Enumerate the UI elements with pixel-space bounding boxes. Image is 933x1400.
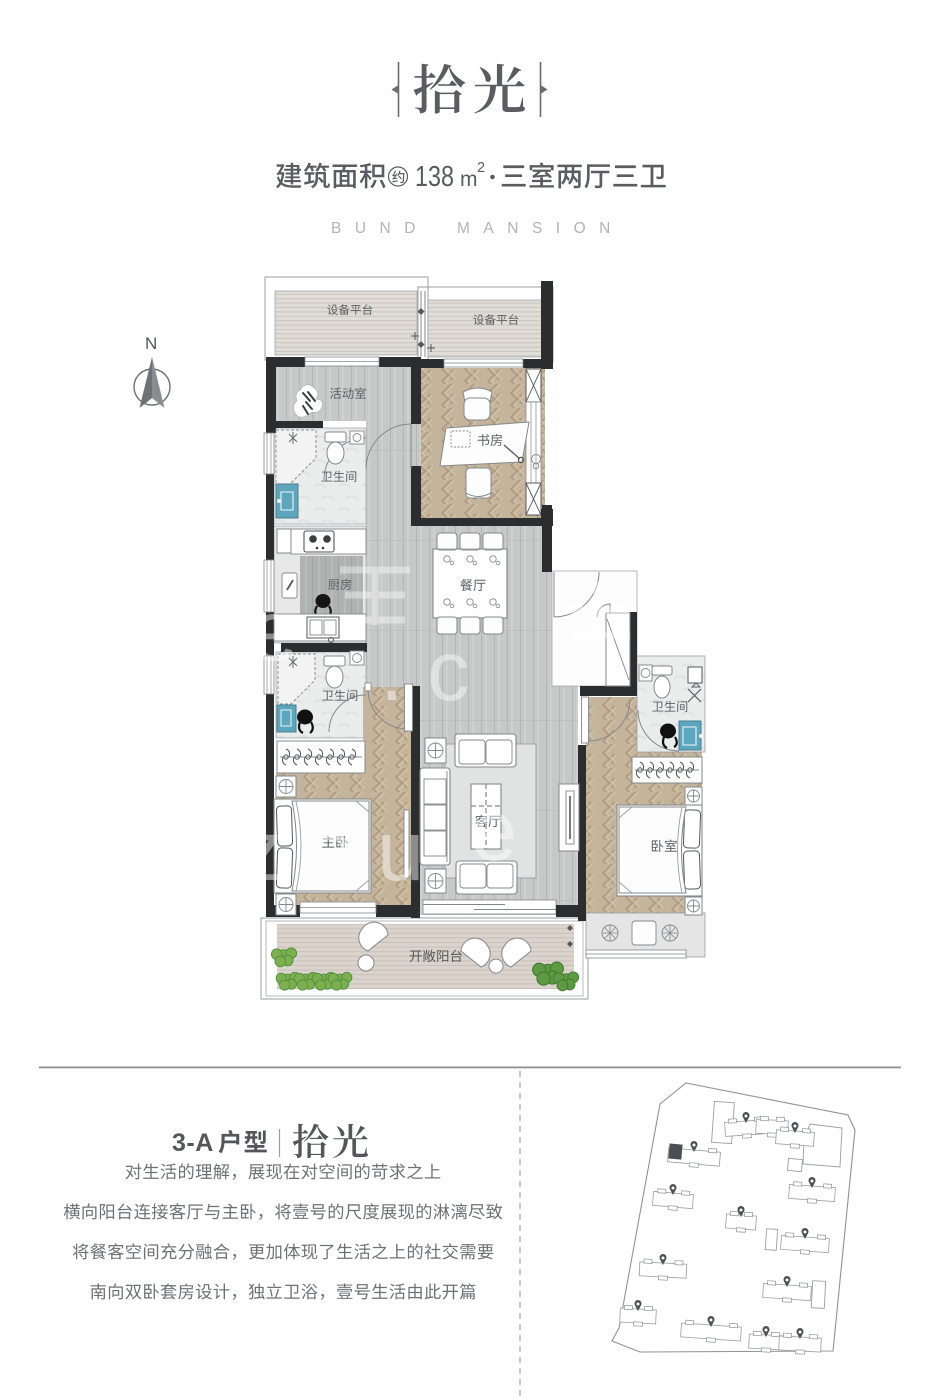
svg-text:138: 138 [415, 161, 454, 193]
svg-text:z h u: z h u [240, 804, 424, 899]
svg-text:e: e [250, 584, 297, 679]
svg-text:N: N [145, 334, 157, 353]
svg-text:BUND: BUND [331, 220, 429, 237]
svg-text:. c: . c [380, 624, 470, 719]
svg-text:MANSION: MANSION [457, 220, 624, 237]
svg-text:2: 2 [477, 160, 485, 176]
svg-text:3-A: 3-A [172, 1129, 214, 1157]
svg-text:m: m [460, 168, 478, 191]
svg-text:e: e [470, 784, 517, 879]
